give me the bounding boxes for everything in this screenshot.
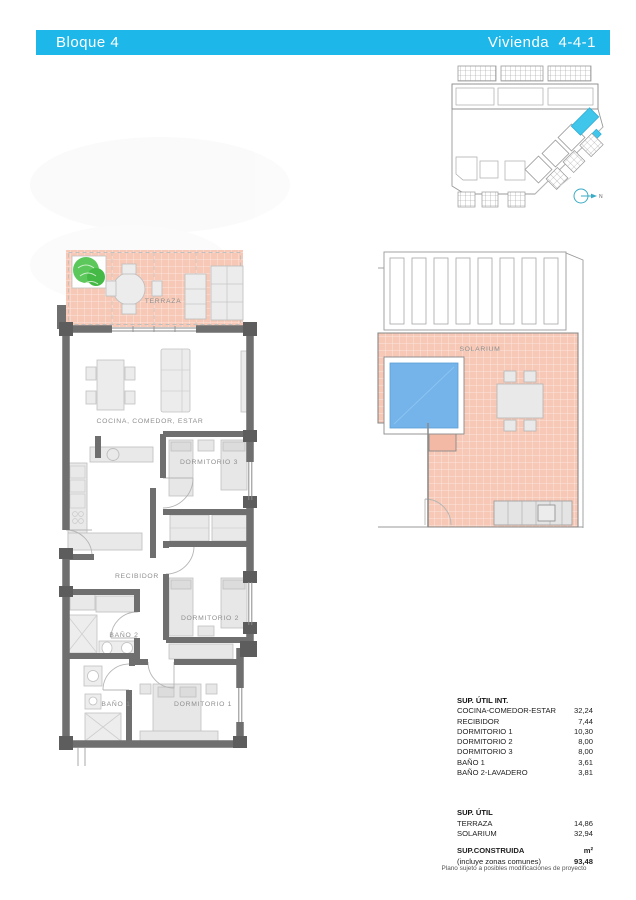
table-row: DORMITORIO 28,00 bbox=[457, 737, 593, 747]
bedroom3-label: DORMITORIO 3 bbox=[180, 459, 238, 466]
block-title: Bloque 4 bbox=[56, 34, 119, 51]
pipes bbox=[78, 748, 85, 766]
built-area-row: SUP.CONSTRUIDAm² bbox=[457, 846, 593, 856]
nightstand bbox=[198, 626, 214, 636]
terrace: TERRAZA bbox=[57, 250, 243, 329]
bedroom3-furniture bbox=[169, 440, 247, 496]
table-row: DORMITORIO 110,30 bbox=[457, 727, 593, 737]
nightstand bbox=[198, 440, 214, 451]
header-bar: Bloque 4 Vivienda 4-4-1 bbox=[36, 30, 610, 55]
table-section-title: SUP. ÚTIL INT. bbox=[457, 696, 593, 706]
roof-hatch bbox=[458, 66, 496, 81]
solarium-plan: SOLARIUM bbox=[378, 252, 583, 528]
dining-table bbox=[97, 360, 124, 410]
unit-title: Vivienda 4-4-1 bbox=[488, 34, 596, 51]
pergola bbox=[378, 252, 566, 330]
bedroom1-furniture bbox=[140, 684, 218, 742]
plan-sheet: N bbox=[0, 0, 636, 900]
hall-wardrobes bbox=[70, 594, 138, 612]
table-row: DORMITORIO 38,00 bbox=[457, 747, 593, 757]
north-label: N bbox=[599, 194, 603, 200]
table-row: COCINA-COMEDOR-ESTAR32,24 bbox=[457, 706, 593, 716]
table-row: TERRAZA14,86 bbox=[457, 819, 593, 829]
roof-hatch bbox=[548, 66, 591, 81]
nightstand bbox=[206, 684, 217, 694]
hall-label: RECIBIDOR bbox=[115, 573, 159, 580]
bathroom1-door bbox=[103, 664, 129, 690]
bedroom2-label: DORMITORIO 2 bbox=[181, 615, 239, 622]
terrace-plant bbox=[72, 256, 106, 288]
nightstand bbox=[140, 684, 151, 694]
solarium-label: SOLARIUM bbox=[459, 346, 500, 353]
wardrobe bbox=[169, 644, 233, 659]
table-section-title: SUP. ÚTIL bbox=[457, 808, 593, 818]
sofa bbox=[161, 349, 190, 412]
site-plan: N bbox=[452, 66, 603, 207]
living-furniture bbox=[86, 349, 250, 412]
pool bbox=[384, 357, 464, 434]
terrace-loungers bbox=[185, 266, 243, 320]
north-compass: N bbox=[560, 177, 603, 203]
roof-hatch bbox=[501, 66, 543, 81]
living-label: COCINA, COMEDOR, ESTAR bbox=[96, 418, 203, 425]
bedroom2-door bbox=[166, 546, 194, 574]
stairs bbox=[494, 501, 572, 525]
table-row: BAÑO 2-LAVADERO3,81 bbox=[457, 768, 593, 778]
site-houses bbox=[456, 157, 525, 180]
toilet bbox=[102, 642, 112, 654]
bathroom1-label: BAÑO 1 bbox=[101, 699, 130, 708]
area-table: SUP. ÚTIL INT. COCINA-COMEDOR-ESTAR32,24… bbox=[457, 696, 593, 867]
table-row: RECIBIDOR7,44 bbox=[457, 717, 593, 727]
terrace-label: TERRAZA bbox=[145, 298, 182, 305]
kitchen-counter-bottom bbox=[68, 533, 142, 550]
bedroom1-label: DORMITORIO 1 bbox=[174, 701, 232, 708]
closets bbox=[170, 515, 249, 541]
disclaimer-note: Plano sujeto a posibles modificaciones d… bbox=[424, 865, 604, 872]
table-row: BAÑO 13,61 bbox=[457, 758, 593, 768]
main-floor-plan: TERRAZA bbox=[57, 250, 257, 766]
table-row: SOLARIUM32,94 bbox=[457, 829, 593, 839]
bathroom2-label: BAÑO 2 bbox=[109, 630, 138, 639]
